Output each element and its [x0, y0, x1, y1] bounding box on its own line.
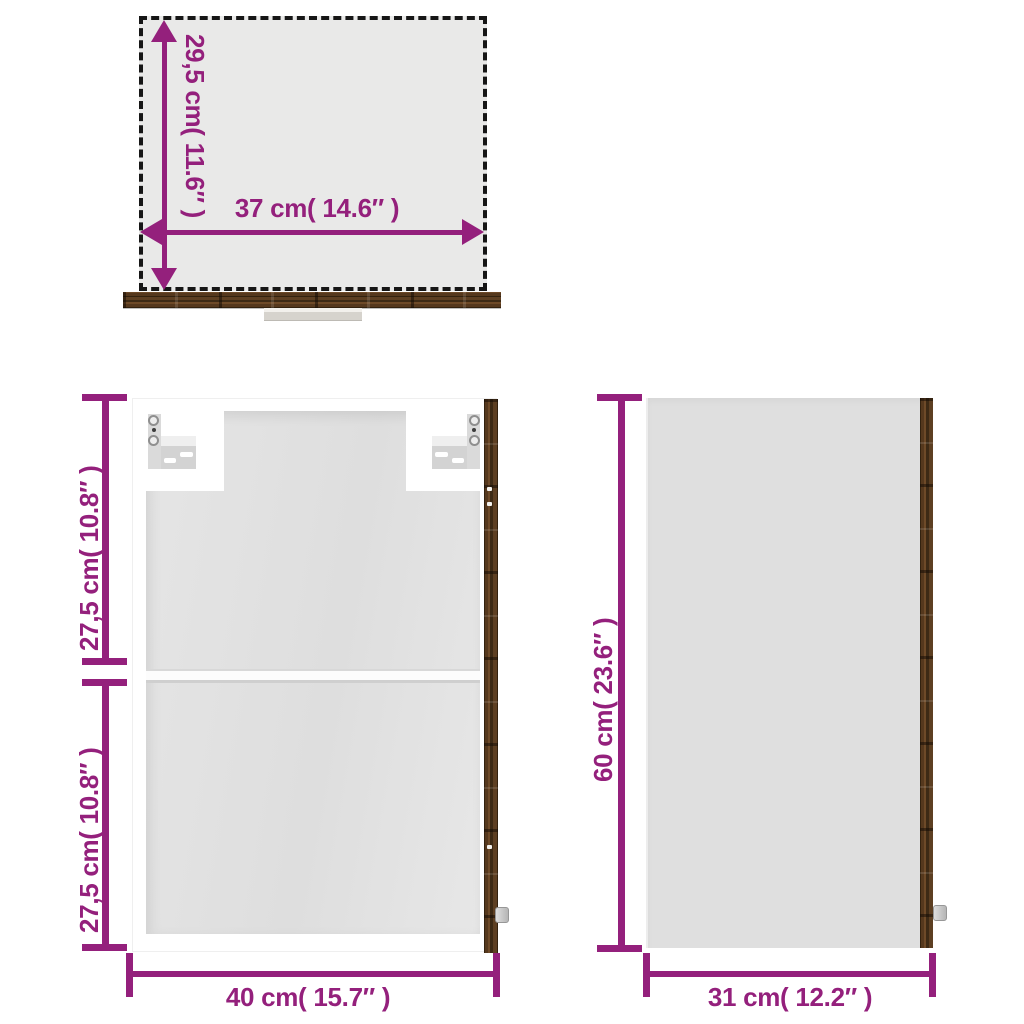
front-view-cabinet: [132, 398, 497, 952]
arrow-left-icon: [140, 219, 162, 245]
front-lower-height-label: 27,5 cm( 10.8″ ): [75, 748, 103, 933]
bracket-slot: [180, 452, 193, 457]
front-upper-height-label: 27,5 cm( 10.8″ ): [75, 466, 103, 651]
side-height-label: 60 cm( 23.6″ ): [589, 618, 617, 782]
door-knob: [495, 907, 509, 923]
pin-hole: [472, 428, 476, 432]
cabinet-dimension-diagram: 29,5 cm( 11.6″ ) 37 cm( 14.6″ ): [0, 0, 1024, 1024]
front-width-label: 40 cm( 15.7″ ): [226, 983, 390, 1011]
dim-tick: [597, 945, 642, 952]
wall-bracket-icon: [432, 436, 467, 469]
width-arrow-shaft: [159, 230, 464, 235]
top-view-wood-front-edge: [123, 292, 501, 308]
screw-icon: [469, 435, 480, 446]
screw-icon: [148, 415, 159, 426]
pin-hole: [152, 428, 156, 432]
door-knob: [933, 905, 947, 921]
arrow-right-icon: [462, 219, 484, 245]
top-view-door-handle: [264, 308, 362, 321]
side-door-edge-wood: [920, 398, 933, 948]
dim-tick: [82, 944, 127, 951]
hinge-screw: [487, 487, 492, 491]
depth-arrow-shaft: [162, 38, 167, 270]
door-edge-wood: [484, 399, 498, 953]
bracket-slot: [452, 458, 464, 463]
dim-line-front-width: [130, 971, 496, 977]
hinge-screw: [487, 502, 492, 506]
dim-line-side-width: [647, 971, 932, 977]
arrow-up-icon: [151, 20, 177, 42]
hinge-screw: [487, 845, 492, 849]
wall-bracket-icon: [161, 436, 196, 469]
mount-area-right: [406, 411, 484, 491]
top-view-depth-label: 29,5 cm( 11.6″ ): [181, 34, 209, 218]
screw-icon: [148, 435, 159, 446]
dim-tick: [929, 953, 936, 997]
arrow-down-icon: [151, 268, 177, 290]
top-view-width-label: 37 cm( 14.6″ ): [235, 194, 399, 222]
shelf: [146, 669, 480, 683]
mount-area-left: [144, 411, 224, 491]
dim-tick: [82, 658, 127, 665]
dim-line-side-height: [618, 397, 625, 949]
side-width-label: 31 cm( 12.2″ ): [708, 983, 872, 1011]
screw-icon: [469, 415, 480, 426]
side-view-panel: [646, 398, 933, 948]
dim-tick: [493, 953, 500, 997]
bracket-slot: [435, 452, 448, 457]
bracket-slot: [164, 458, 176, 463]
